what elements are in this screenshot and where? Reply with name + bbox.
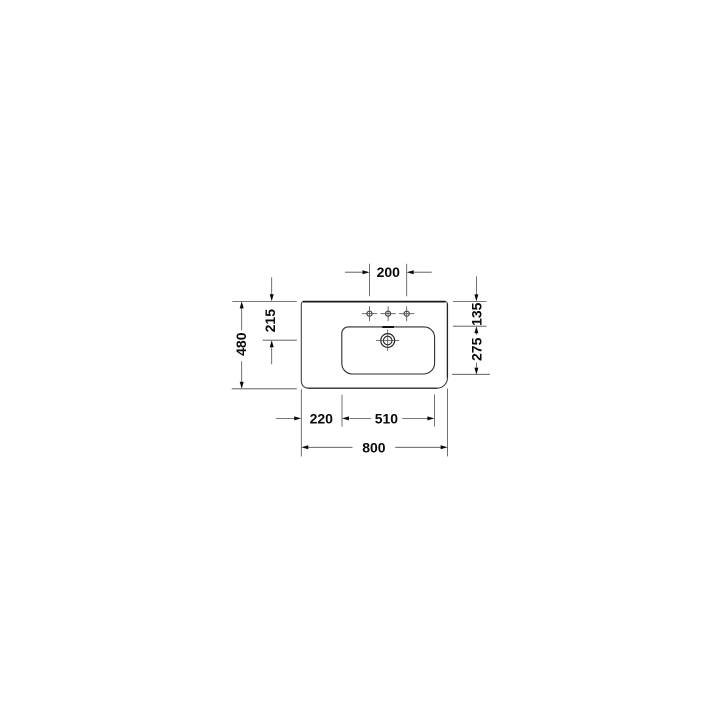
svg-text:510: 510: [375, 410, 399, 426]
svg-text:800: 800: [362, 439, 386, 455]
svg-text:200: 200: [377, 264, 401, 280]
svg-text:480: 480: [233, 332, 249, 356]
svg-text:220: 220: [310, 410, 334, 426]
svg-text:215: 215: [262, 309, 278, 333]
svg-text:135: 135: [468, 302, 484, 326]
svg-text:275: 275: [468, 337, 484, 361]
